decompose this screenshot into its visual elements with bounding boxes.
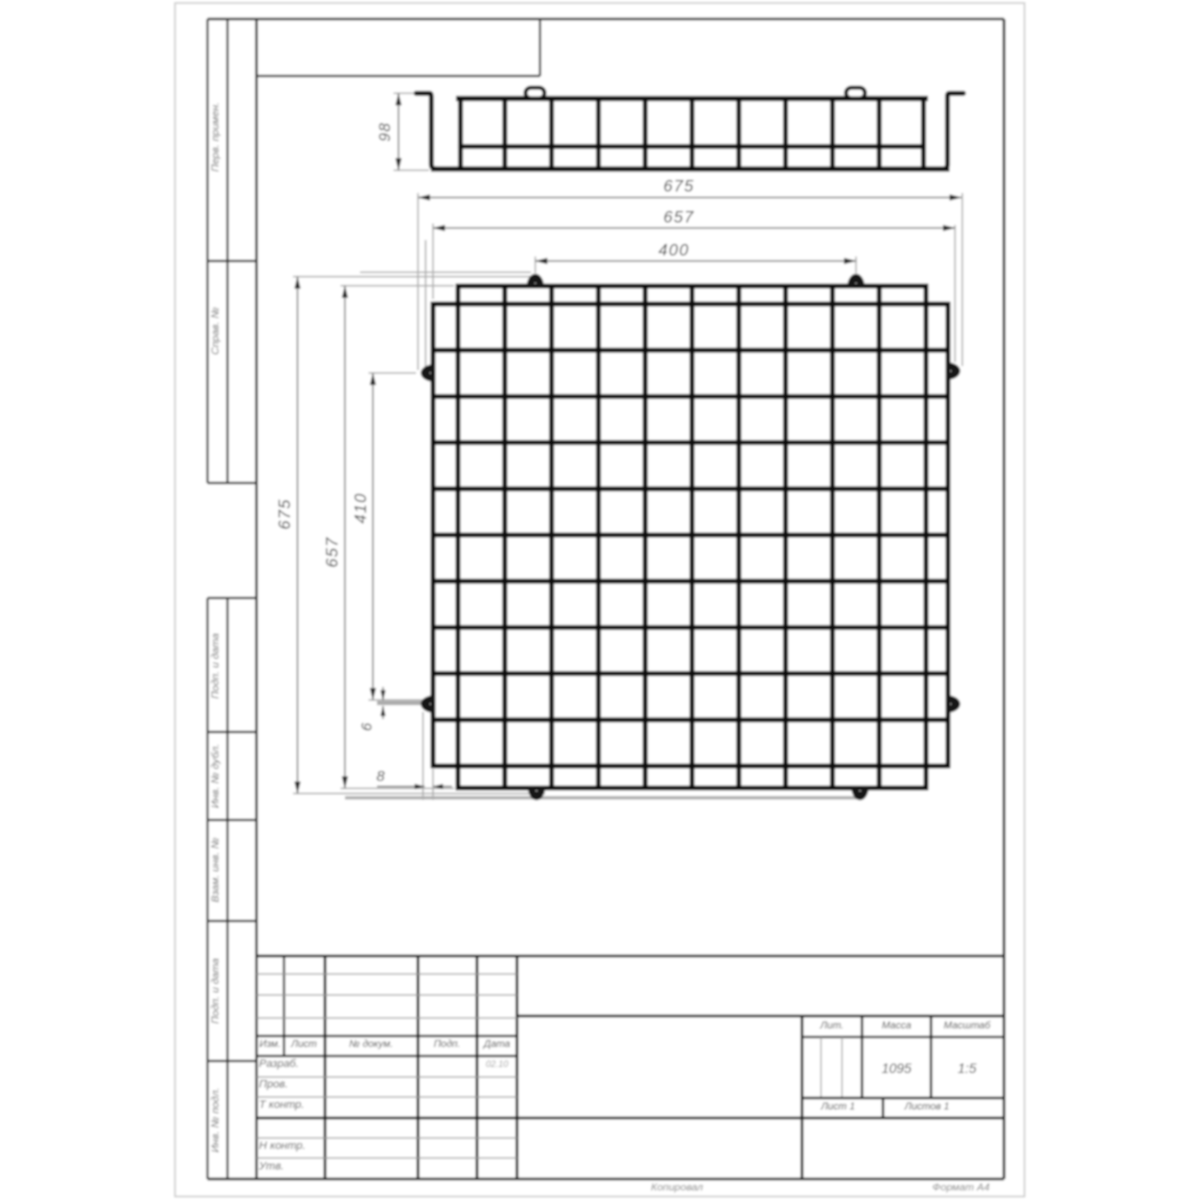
svg-text:1:5: 1:5 xyxy=(958,1061,977,1076)
svg-text:Инв. № дубл.: Инв. № дубл. xyxy=(210,744,222,809)
svg-text:Формат А4: Формат А4 xyxy=(932,1182,990,1194)
svg-text:Инв. № подл.: Инв. № подл. xyxy=(210,1087,222,1152)
svg-text:Масса: Масса xyxy=(882,1021,912,1032)
svg-text:Подп. и дата: Подп. и дата xyxy=(210,633,222,699)
svg-text:Взам. инв. №: Взам. инв. № xyxy=(210,838,222,903)
svg-text:675: 675 xyxy=(663,178,694,196)
svg-text:Листов 1: Листов 1 xyxy=(904,1102,950,1113)
svg-text:Подп.: Подп. xyxy=(434,1039,461,1050)
svg-text:Изм.: Изм. xyxy=(259,1039,280,1050)
svg-text:1095: 1095 xyxy=(881,1061,912,1076)
svg-text:Подп. и дата: Подп. и дата xyxy=(210,958,222,1024)
svg-text:02.10: 02.10 xyxy=(486,1059,509,1069)
svg-text:400: 400 xyxy=(658,242,689,260)
svg-text:Лит.: Лит. xyxy=(819,1021,843,1032)
svg-text:Пров.: Пров. xyxy=(259,1079,288,1091)
svg-text:Лист 1: Лист 1 xyxy=(820,1102,855,1113)
svg-text:Дата: Дата xyxy=(483,1039,511,1050)
svg-text:Перв. примен.: Перв. примен. xyxy=(210,102,222,172)
svg-text:657: 657 xyxy=(663,209,694,227)
svg-text:Копировал: Копировал xyxy=(651,1182,703,1194)
svg-text:Н контр.: Н контр. xyxy=(259,1140,306,1152)
svg-text:98: 98 xyxy=(377,122,394,142)
svg-text:Справ. №: Справ. № xyxy=(210,307,222,355)
svg-text:Масштаб: Масштаб xyxy=(944,1020,991,1032)
svg-text:Утв.: Утв. xyxy=(258,1161,284,1173)
svg-text:Разраб.: Разраб. xyxy=(259,1058,299,1070)
svg-text:Т контр.: Т контр. xyxy=(259,1099,304,1111)
svg-text:410: 410 xyxy=(352,492,370,523)
svg-text:8: 8 xyxy=(376,768,385,785)
svg-text:№ докум.: № докум. xyxy=(349,1039,393,1050)
svg-text:Лист: Лист xyxy=(290,1039,317,1050)
svg-text:657: 657 xyxy=(324,536,342,567)
svg-text:675: 675 xyxy=(276,498,294,529)
svg-text:6: 6 xyxy=(359,722,376,731)
